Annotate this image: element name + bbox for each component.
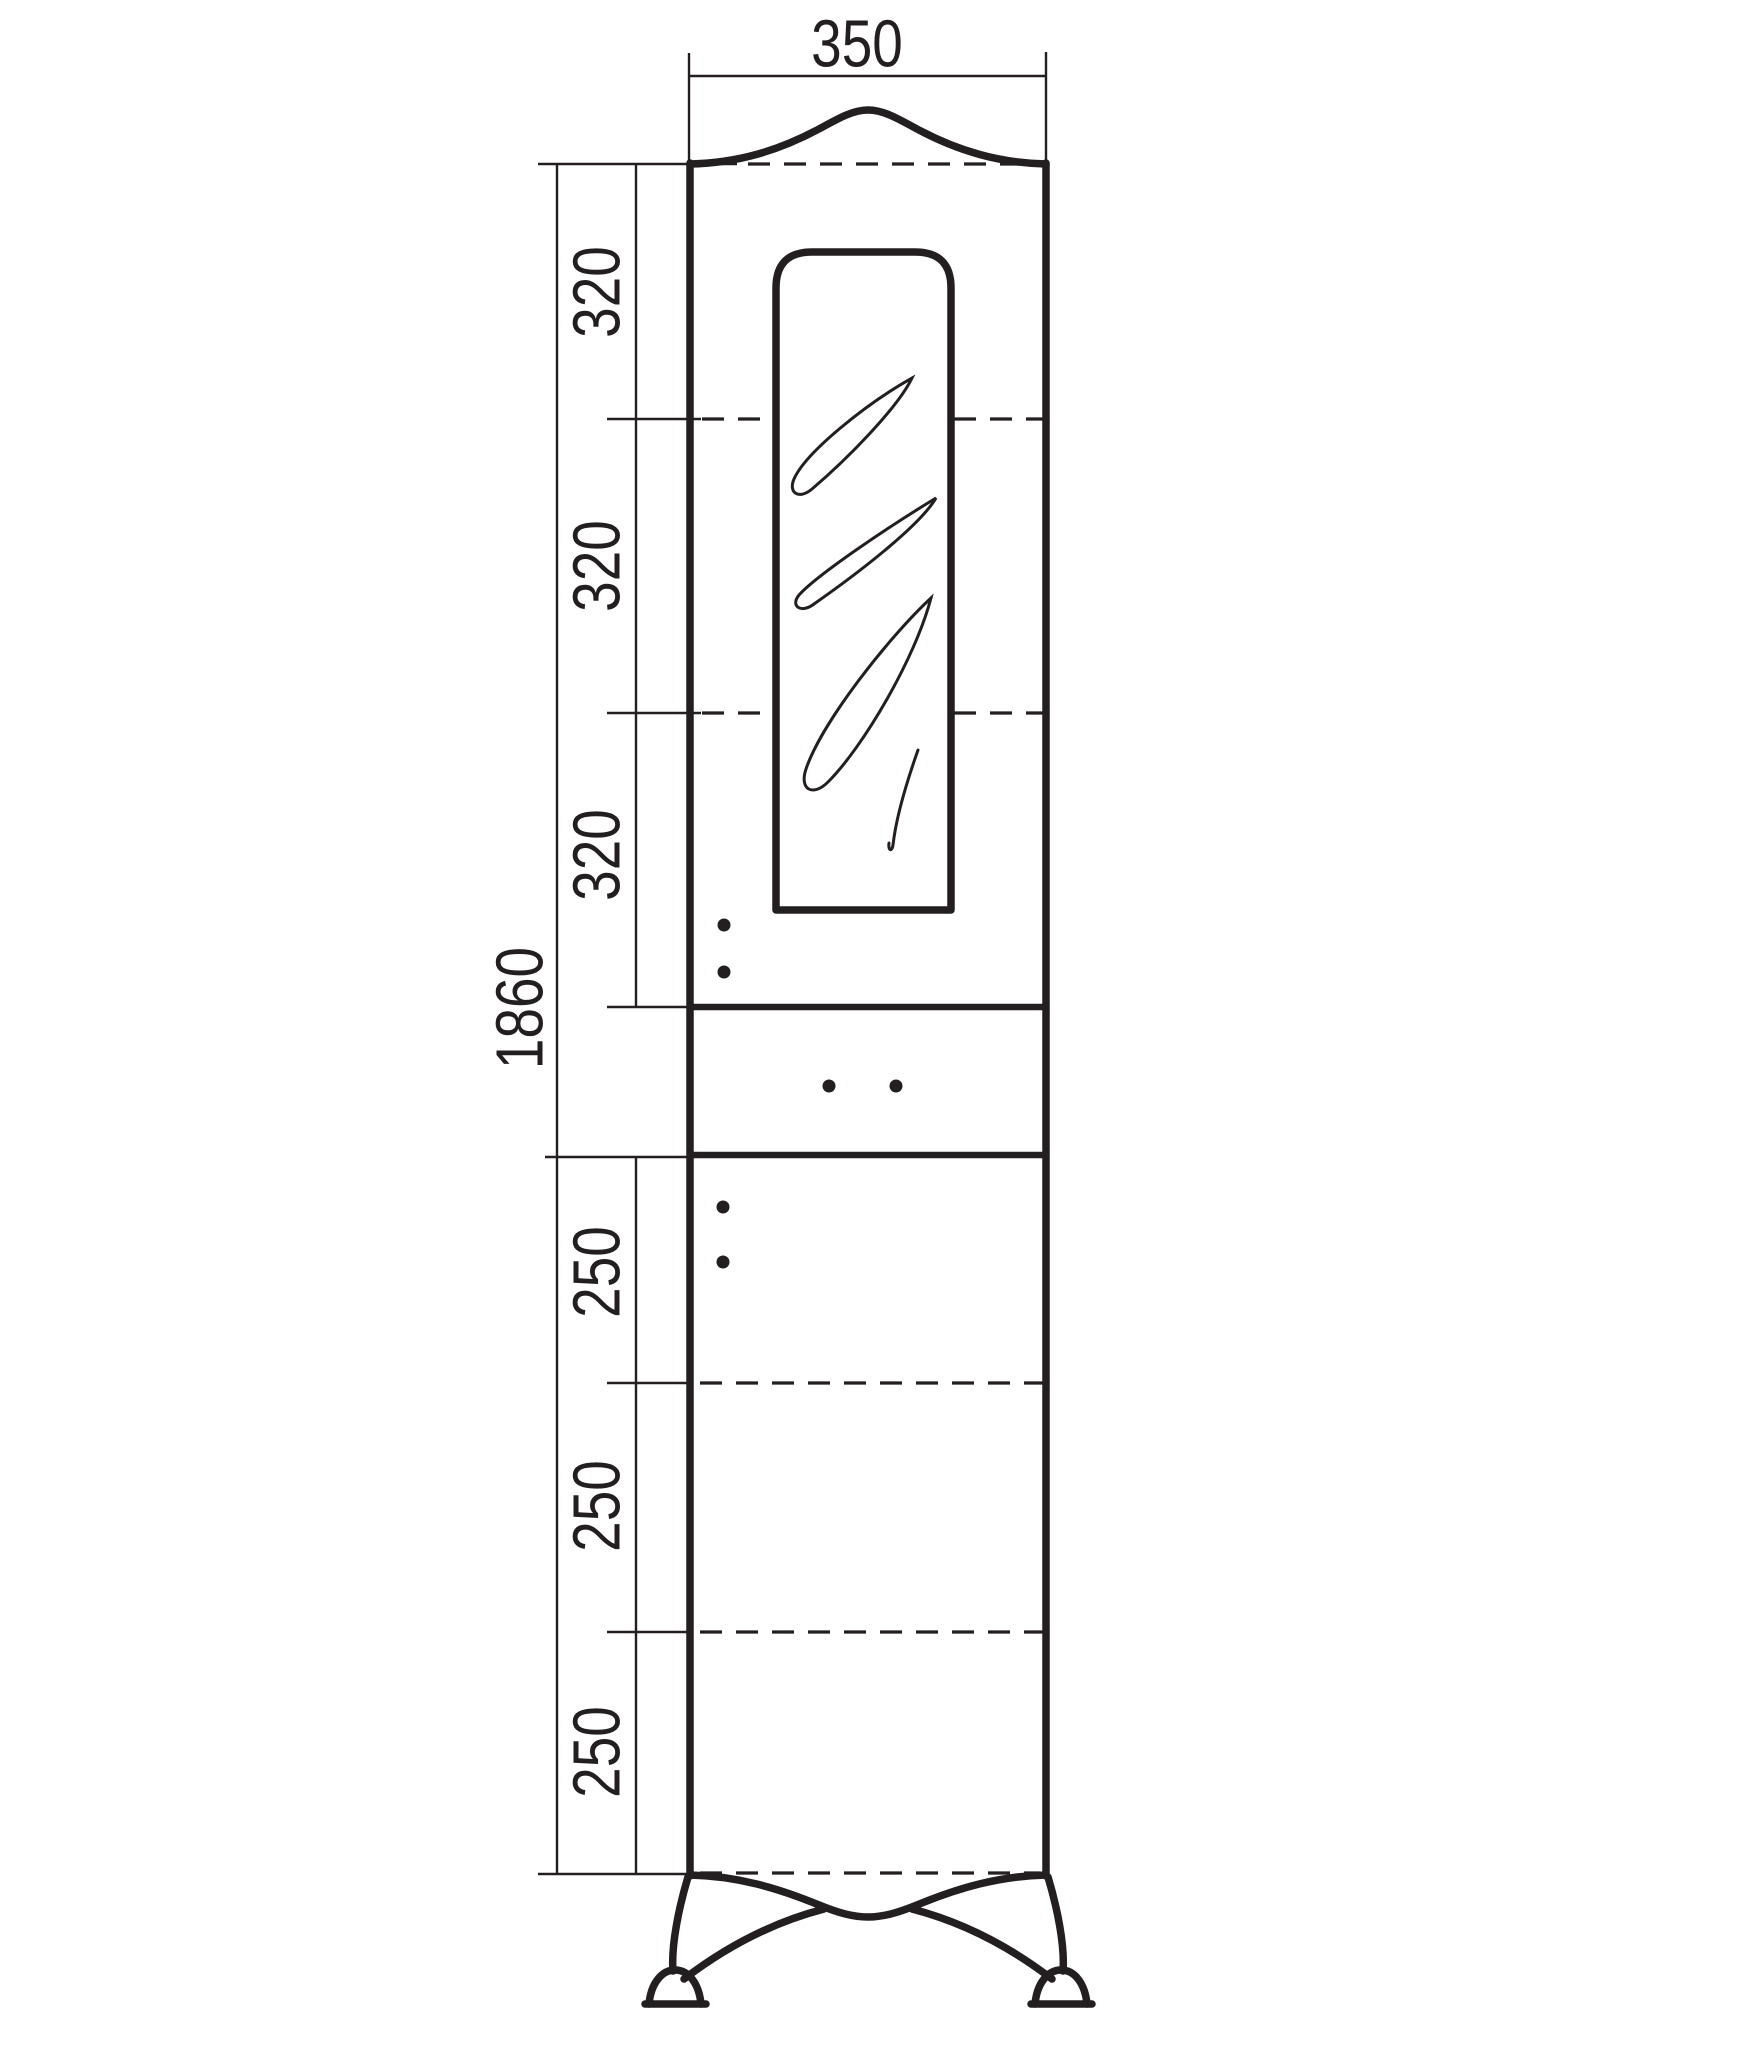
right-foot-dome (1035, 1970, 1087, 2004)
cabinet-crown-curve (690, 110, 1046, 164)
dimension-label-segment-320-1: 320 (564, 246, 631, 338)
lower-door-hinge-lower (717, 1256, 730, 1269)
mirror-door-hinge-lower (718, 966, 731, 979)
reflection-blade-1 (792, 378, 912, 494)
drawer (690, 1007, 1046, 1155)
left-leg-inner-curve (684, 1909, 824, 1979)
reflection-tail (889, 750, 918, 850)
dimension-label-width: 350 (811, 11, 903, 78)
left-leg-outer-curve (673, 1877, 688, 1971)
mirror-door-hinge-upper (718, 919, 731, 932)
drawer-knob-right (890, 1080, 903, 1093)
dimension-label-segment-320-2: 320 (564, 520, 631, 612)
cabinet-apron-curve (690, 1875, 1046, 1917)
cabinet-elevation-drawing (0, 0, 1757, 2048)
drawer-knob-left (823, 1080, 836, 1093)
right-leg-outer-curve (1048, 1877, 1063, 1971)
dimension-label-segment-250-2: 250 (564, 1460, 631, 1552)
left-foot-dome (649, 1970, 701, 2004)
mirror-door-frame (776, 252, 951, 910)
dimension-label-segment-250-3: 250 (564, 1706, 631, 1798)
dimension-label-segment-320-3: 320 (564, 809, 631, 901)
cabinet-outline (690, 110, 1046, 1917)
dimension-label-segment-250-1: 250 (564, 1226, 631, 1318)
technical-drawing-canvas: 350 1860 320 320 320 250 250 250 (0, 0, 1757, 2048)
dimension-label-overall-height: 1860 (487, 947, 554, 1069)
mirror-reflection-squiggle (792, 378, 936, 850)
reflection-blade-3 (804, 598, 931, 790)
right-leg-inner-curve (912, 1909, 1052, 1979)
hinge-dots (717, 919, 731, 1269)
lower-door-hinge-upper (717, 1201, 730, 1214)
reflection-blade-2 (796, 498, 936, 609)
hidden-lines (700, 164, 1043, 1873)
